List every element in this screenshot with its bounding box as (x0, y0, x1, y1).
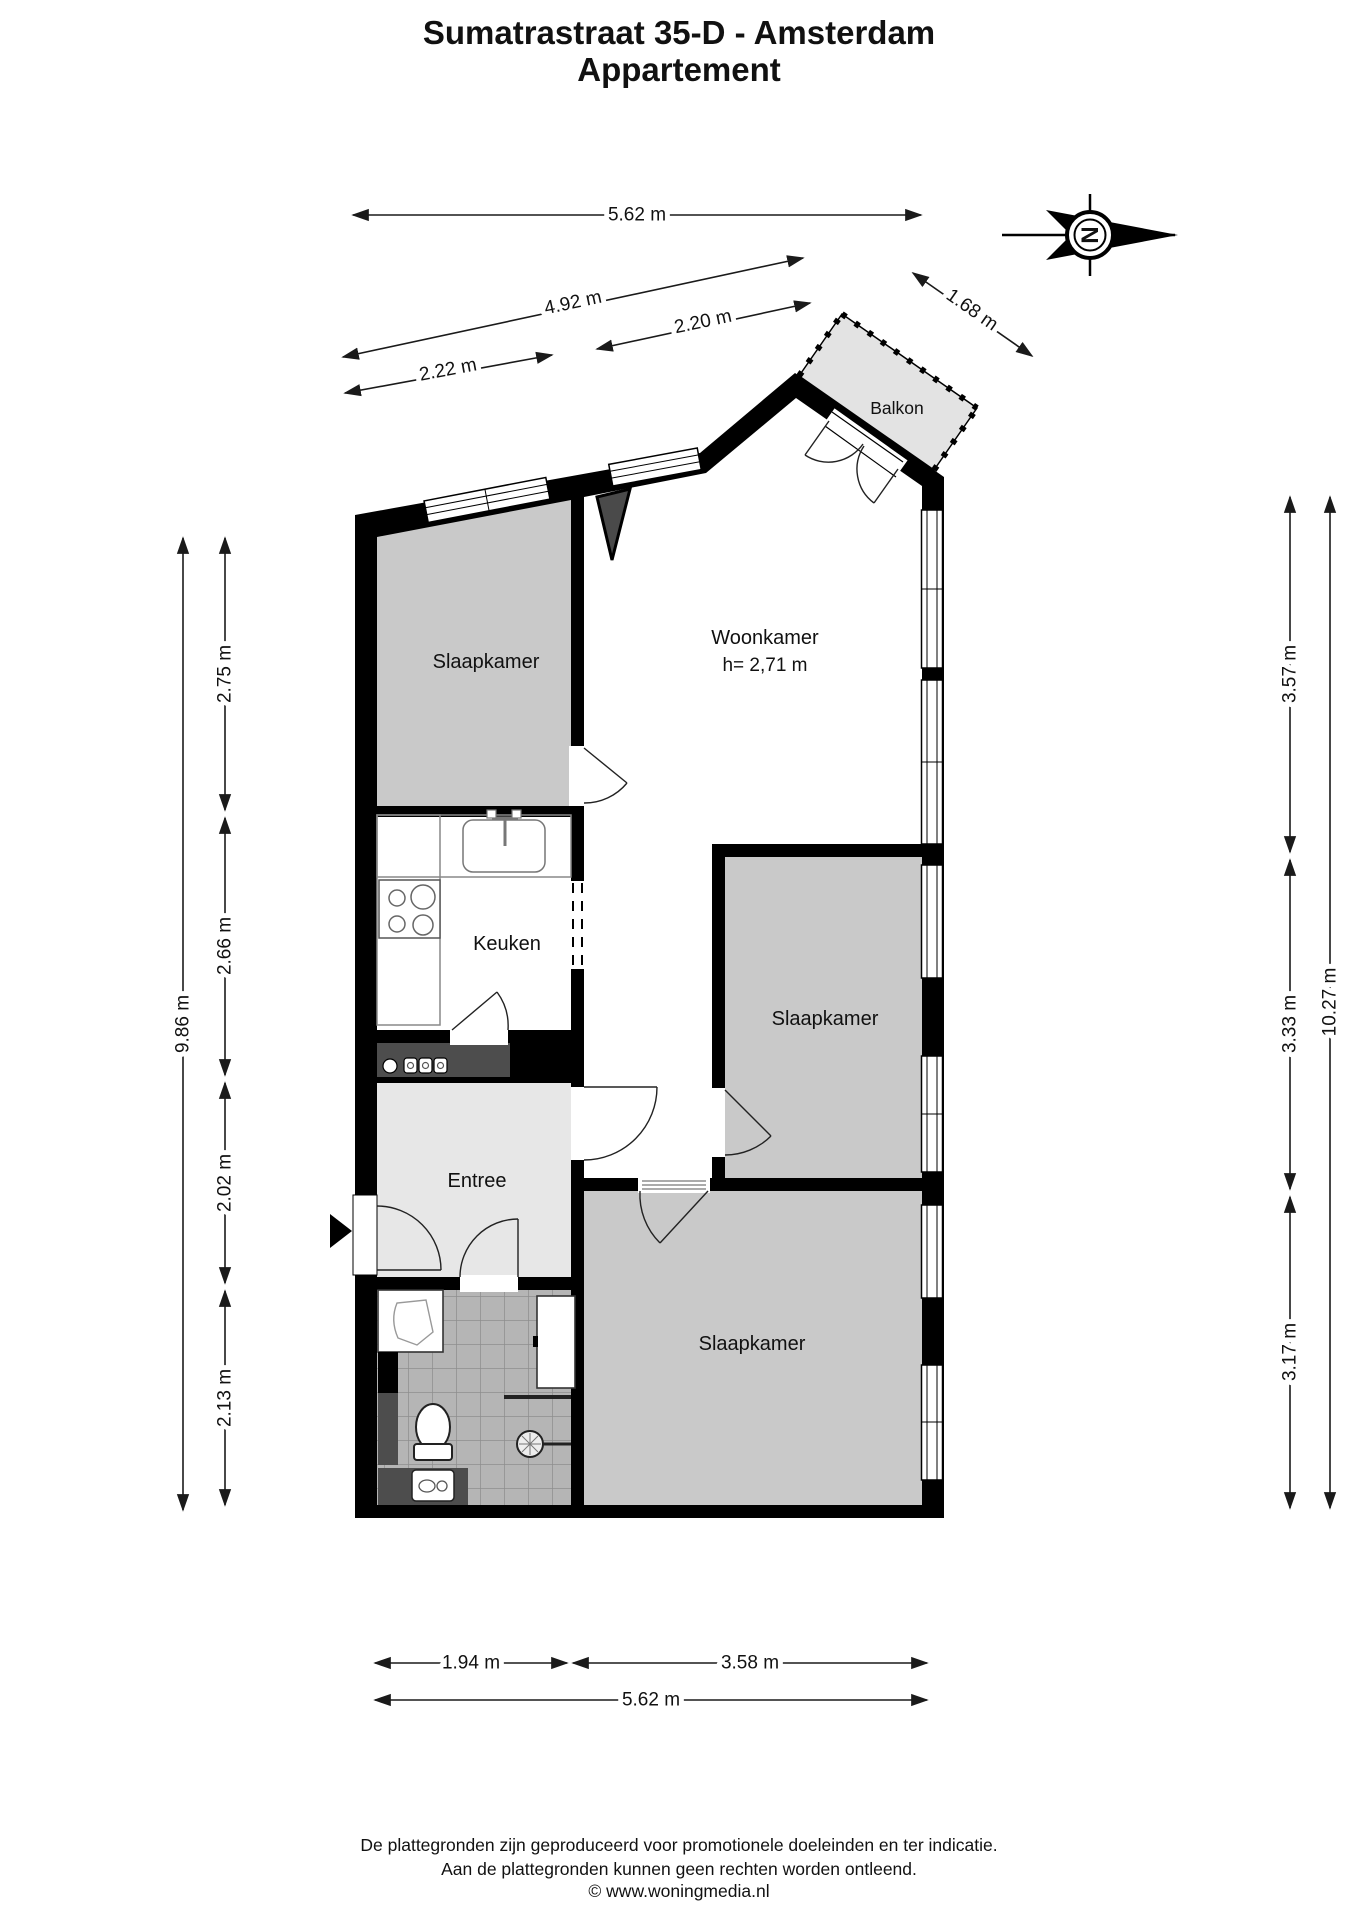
footer-disclaimer-2: Aan de plattegronden kunnen geen rechten… (441, 1859, 917, 1879)
label-entree: Entree (448, 1170, 507, 1192)
dim-top-overall: 5.62 m (353, 205, 921, 226)
dim-top-492: 4.92 m (343, 258, 803, 357)
footer-copyright: © www.woningmedia.nl (588, 1881, 769, 1901)
label-slaapkamer-1: Slaapkamer (433, 651, 540, 673)
toilet-partition (378, 1393, 398, 1465)
dim-left-213: 2.13 m (215, 1291, 236, 1505)
label-balkon: Balkon (870, 398, 924, 418)
svg-text:5.62 m: 5.62 m (622, 1690, 680, 1711)
svg-text:1.94 m: 1.94 m (442, 1653, 500, 1674)
page-subtitle: Appartement (577, 51, 781, 88)
label-keuken: Keuken (473, 933, 541, 955)
meter-icons (383, 1058, 447, 1073)
floor-plan-svg: Sumatrastraat 35-D - Amsterdam Apparteme… (0, 0, 1358, 1920)
svg-text:1.68 m: 1.68 m (942, 285, 1002, 336)
svg-text:3.33 m: 3.33 m (1280, 995, 1301, 1053)
svg-text:2.66 m: 2.66 m (215, 917, 236, 975)
dim-top-222: 2.22 m (345, 354, 552, 393)
dim-left-202: 2.02 m (215, 1083, 236, 1283)
dim-left-266: 2.66 m (215, 818, 236, 1075)
dim-right-357: 3.57 m (1280, 497, 1301, 852)
dim-left-overall: 9.86 m (173, 538, 194, 1510)
dim-bottom-358: 3.58 m (573, 1653, 927, 1674)
compass-letter: N (1076, 226, 1103, 243)
svg-text:2.13 m: 2.13 m (215, 1369, 236, 1427)
svg-text:4.92 m: 4.92 m (542, 287, 603, 320)
floorplan-page: Sumatrastraat 35-D - Amsterdam Apparteme… (0, 0, 1358, 1920)
svg-text:2.75 m: 2.75 m (215, 645, 236, 703)
cistern (412, 1470, 454, 1501)
dim-bottom-194: 1.94 m (375, 1653, 567, 1674)
svg-text:2.22 m: 2.22 m (418, 354, 479, 385)
dim-right-overall: 10.27 m (1320, 497, 1341, 1508)
label-slaapkamer-3: Slaapkamer (699, 1333, 806, 1355)
svg-text:3.17 m: 3.17 m (1280, 1323, 1301, 1381)
svg-text:2.20 m: 2.20 m (672, 306, 733, 339)
dim-balcony-168: 1.68 m (913, 273, 1032, 356)
svg-text:3.57 m: 3.57 m (1280, 645, 1301, 703)
dim-right-317: 3.17 m (1280, 1197, 1301, 1508)
label-slaapkamer-2: Slaapkamer (772, 1008, 879, 1030)
page-title: Sumatrastraat 35-D - Amsterdam (423, 14, 935, 51)
svg-text:2.02 m: 2.02 m (215, 1154, 236, 1212)
dim-left-275: 2.75 m (215, 538, 236, 810)
footer-disclaimer-1: De plattegronden zijn geproduceerd voor … (360, 1835, 997, 1855)
dim-bottom-overall: 5.62 m (375, 1690, 927, 1711)
footer: De plattegronden zijn geproduceerd voor … (360, 1835, 997, 1901)
label-woonkamer-height: h= 2,71 m (722, 655, 807, 676)
svg-text:5.62 m: 5.62 m (608, 205, 666, 226)
room-floors (377, 398, 922, 1505)
entrance-arrow (330, 1214, 352, 1248)
svg-text:3.58 m: 3.58 m (721, 1653, 779, 1674)
svg-text:9.86 m: 9.86 m (173, 995, 194, 1053)
svg-text:10.27 m: 10.27 m (1320, 968, 1341, 1037)
north-compass: N (1002, 194, 1178, 276)
label-woonkamer: Woonkamer (711, 627, 819, 649)
dim-top-220: 2.20 m (597, 303, 810, 349)
dim-right-333: 3.33 m (1280, 860, 1301, 1189)
shower-screen (537, 1296, 575, 1388)
